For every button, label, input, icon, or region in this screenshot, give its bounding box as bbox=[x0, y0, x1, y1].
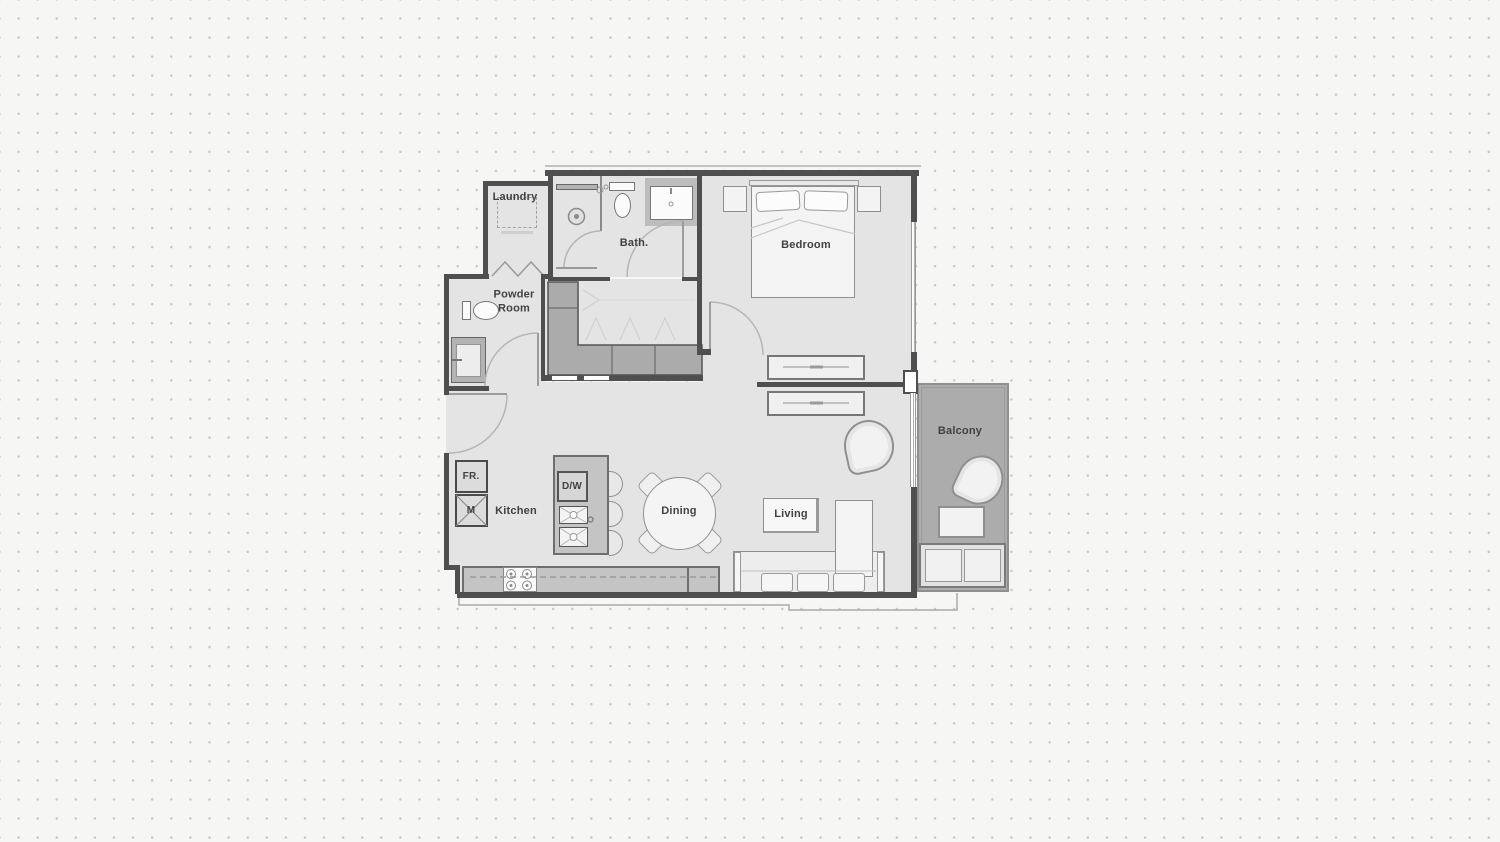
dresser-living bbox=[767, 391, 865, 416]
wall-bath-bottom-left bbox=[548, 277, 610, 281]
bath-toilet-tank bbox=[609, 182, 635, 191]
wall-top-main bbox=[545, 170, 919, 176]
dishwasher-label: D/W bbox=[562, 481, 582, 494]
pillow-right bbox=[804, 190, 849, 212]
bath-label: Bath. bbox=[620, 237, 649, 251]
closet-door-leaf-1 bbox=[551, 375, 578, 381]
wall-laundry-left bbox=[483, 181, 488, 279]
nightstand-left bbox=[723, 186, 747, 212]
wall-bottom-main bbox=[457, 592, 917, 598]
powder-room-label: Powder Room bbox=[482, 288, 546, 316]
wall-powder-bottom bbox=[444, 386, 489, 391]
powder-toilet-tank bbox=[462, 301, 471, 320]
dresser-bedroom bbox=[767, 355, 865, 380]
dining-label: Dining bbox=[661, 505, 696, 519]
washer-spec-text bbox=[501, 231, 533, 234]
living-label: Living bbox=[774, 508, 808, 522]
closet-door-leaf-2 bbox=[583, 375, 610, 381]
bedroom-label: Bedroom bbox=[781, 239, 831, 253]
balcony-table bbox=[938, 506, 985, 538]
balcony-sliding-door-glass-line bbox=[913, 393, 914, 487]
stove bbox=[503, 567, 537, 592]
island-sink-2 bbox=[559, 527, 588, 547]
wall-right-upper bbox=[911, 170, 917, 222]
wall-laundry-top bbox=[483, 181, 548, 186]
counter-divider bbox=[687, 566, 689, 594]
sofa-cushion-3 bbox=[833, 573, 865, 592]
wall-bath-right bbox=[697, 176, 702, 281]
floor-plan-canvas: Laundry Bath. Bedroom Powder Room Kitche… bbox=[0, 0, 1500, 842]
balcony-bench-cushion-1 bbox=[925, 549, 962, 582]
wall-bedroom-left bbox=[697, 281, 702, 349]
laundry-label: Laundry bbox=[493, 191, 538, 205]
wall-left-step-vertical bbox=[455, 567, 460, 594]
balcony-label: Balcony bbox=[938, 425, 982, 439]
sofa-armrest-right bbox=[877, 552, 884, 592]
island-sink-1 bbox=[559, 506, 588, 524]
sofa-cushion-2 bbox=[797, 573, 829, 592]
balcony-sliding-door bbox=[910, 393, 916, 487]
wall-bath-left bbox=[548, 176, 553, 281]
wall-bath-bottom-right bbox=[682, 277, 697, 281]
fridge-label: FR. bbox=[463, 471, 480, 484]
wall-powder-top bbox=[444, 274, 489, 279]
nightstand-right bbox=[857, 186, 881, 212]
facade-pillar bbox=[903, 370, 918, 394]
balcony-bench-cushion-2 bbox=[964, 549, 1001, 582]
bedroom-window-glass-line bbox=[914, 222, 915, 352]
wall-powder-left bbox=[444, 274, 449, 395]
kitchen-counter bbox=[462, 566, 720, 594]
bath-toilet-bowl bbox=[614, 193, 631, 218]
microwave-label: M bbox=[467, 505, 476, 518]
wall-bedroom-living-divider bbox=[757, 382, 903, 387]
building-outline-top bbox=[545, 165, 921, 167]
sofa-armrest-left bbox=[734, 552, 741, 592]
kitchen-label: Kitchen bbox=[495, 505, 537, 519]
wall-left-lower bbox=[444, 453, 449, 570]
sofa-cushion-1 bbox=[761, 573, 793, 592]
powder-sink-basin bbox=[456, 344, 481, 377]
bedroom-window bbox=[911, 222, 916, 352]
shower-shelf bbox=[556, 184, 598, 190]
closet-floor bbox=[545, 279, 702, 379]
wall-bedroom-door-stub bbox=[697, 349, 711, 355]
chaise-lounge bbox=[835, 500, 873, 577]
pillow-left bbox=[756, 190, 801, 212]
bath-sink bbox=[650, 186, 693, 220]
wall-right-middle bbox=[911, 352, 917, 372]
wall-right-lower bbox=[911, 487, 917, 596]
